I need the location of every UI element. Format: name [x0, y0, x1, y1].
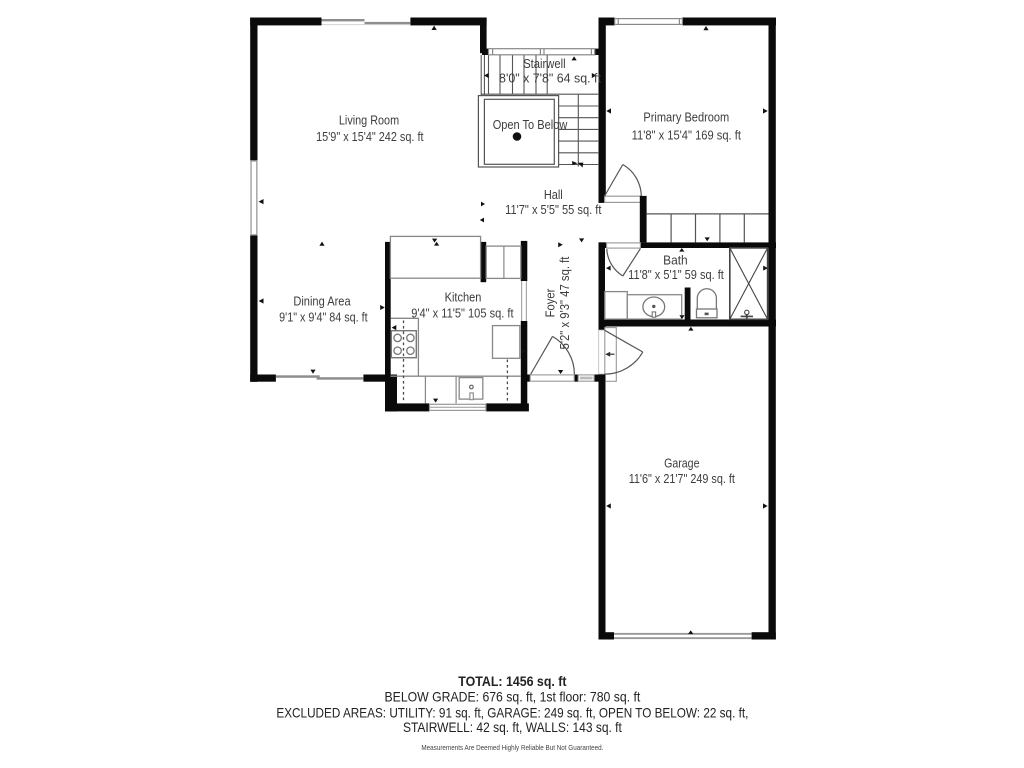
svg-text:Measurements Are Deemed Highly: Measurements Are Deemed Highly Reliable …	[421, 743, 603, 752]
svg-text:11'7" x 5'5" 55 sq. ft: 11'7" x 5'5" 55 sq. ft	[505, 202, 602, 217]
svg-text:Primary Bedroom: Primary Bedroom	[643, 110, 729, 125]
svg-text:11'8" x 15'4" 169 sq. ft: 11'8" x 15'4" 169 sq. ft	[632, 127, 742, 142]
svg-text:9'4" x 11'5" 105 sq. ft: 9'4" x 11'5" 105 sq. ft	[411, 305, 514, 320]
svg-text:TOTAL: 1456 sq. ft: TOTAL: 1456 sq. ft	[458, 673, 566, 689]
svg-text:Kitchen: Kitchen	[445, 290, 482, 305]
svg-text:Dining Area: Dining Area	[293, 294, 351, 309]
svg-text:BELOW GRADE: 676 sq. ft, 1st f: BELOW GRADE: 676 sq. ft, 1st floor: 780 …	[385, 689, 641, 705]
svg-text:9'1" x 9'4" 84 sq. ft: 9'1" x 9'4" 84 sq. ft	[279, 309, 368, 324]
svg-text:Hall: Hall	[544, 187, 563, 202]
svg-text:STAIRWELL: 42 sq. ft, WALLS: 1: STAIRWELL: 42 sq. ft, WALLS: 143 sq. ft	[403, 719, 622, 735]
svg-text:5'2" x 9'3" 47 sq. ft: 5'2" x 9'3" 47 sq. ft	[557, 256, 572, 349]
svg-text:Stairwell: Stairwell	[523, 56, 565, 71]
svg-text:Foyer: Foyer	[543, 288, 558, 317]
svg-text:Garage: Garage	[664, 455, 699, 470]
svg-text:Bath: Bath	[663, 252, 688, 267]
svg-text:11'6" x 21'7" 249 sq. ft: 11'6" x 21'7" 249 sq. ft	[629, 471, 735, 486]
svg-text:15'9" x 15'4" 242 sq. ft: 15'9" x 15'4" 242 sq. ft	[316, 129, 424, 144]
svg-text:Living Room: Living Room	[339, 113, 399, 128]
svg-text:11'8" x 5'1" 59 sq. ft: 11'8" x 5'1" 59 sq. ft	[628, 267, 724, 282]
svg-text:Open To Below: Open To Below	[493, 117, 568, 132]
svg-text:8'0" x 7'8" 64 sq. ft: 8'0" x 7'8" 64 sq. ft	[499, 71, 601, 86]
